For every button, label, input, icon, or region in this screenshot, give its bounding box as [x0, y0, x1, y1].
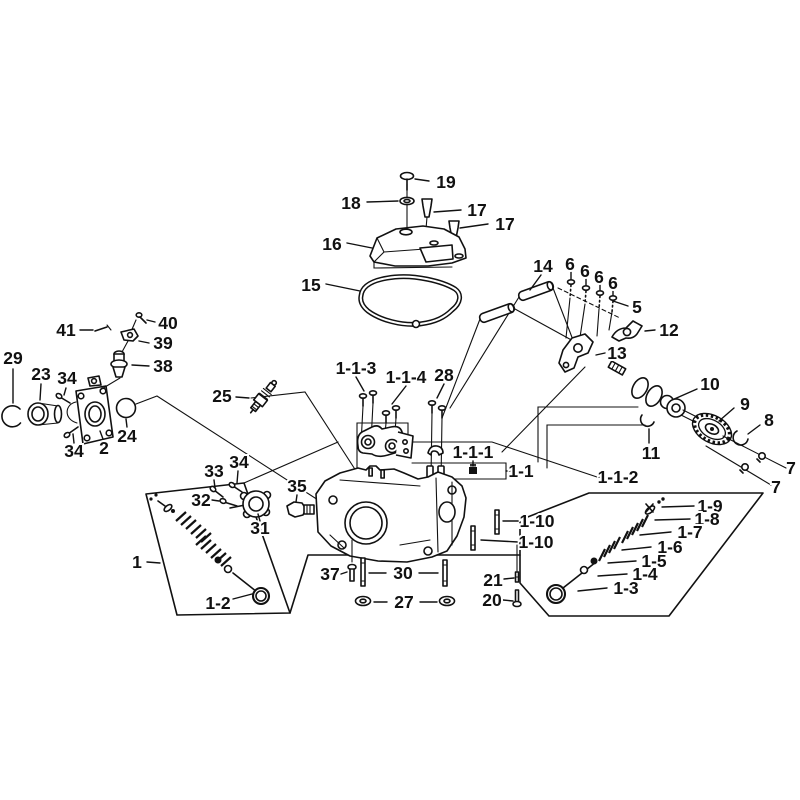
spring-seat-1-4-icon — [581, 567, 588, 574]
callout-14-rocker-shaft-pin: 14 — [533, 256, 553, 276]
washer-27a-icon — [356, 597, 371, 606]
callout-23-guide-sleeve: 23 — [31, 364, 51, 384]
spring-retainer-1-8-icon — [644, 504, 656, 515]
rocker-to-head-line — [502, 367, 585, 452]
rocker-pin-14b-icon — [479, 303, 516, 324]
guide-sleeve-23-icon — [28, 403, 62, 425]
callout-30-stud: 30 — [393, 563, 413, 583]
cam-bore-leader-inner — [547, 425, 645, 468]
leader-line-1 — [147, 562, 160, 563]
washer-18-icon — [400, 197, 414, 204]
callout-6-pivot-bolt: 6 — [594, 267, 604, 287]
callout-32-bolt: 32 — [191, 490, 211, 510]
clip-11-icon — [641, 415, 654, 426]
screw-34b-icon — [63, 427, 78, 439]
washer-27b-icon — [440, 597, 455, 606]
exhaust-valve-1-3-icon — [547, 562, 596, 603]
bolt-7a-icon — [723, 436, 786, 468]
callout-1-10-stud: 1-10 — [519, 511, 554, 531]
callout-20-bolt: 20 — [482, 590, 502, 610]
callout-1-1-4-bolt: 1-1-4 — [386, 367, 427, 387]
outer-spring-1-7-icon — [622, 515, 648, 543]
callout-21-pin: 21 — [483, 570, 503, 590]
rocker-arm-12-icon — [612, 321, 642, 341]
leader-line-28 — [437, 384, 444, 398]
leader-line-35 — [296, 495, 297, 502]
callout-41-bolt-clip: 41 — [56, 320, 76, 340]
callout-7-bolt: 7 — [786, 458, 796, 478]
cover-group — [361, 173, 466, 328]
callout-6-pivot-bolt: 6 — [608, 273, 618, 293]
valve-spring-inner-icon — [196, 536, 231, 566]
o-ring-24-icon — [117, 399, 136, 418]
callout-28-bolt: 28 — [434, 365, 454, 385]
spring-seat-icon — [215, 557, 222, 564]
leader-line-34 — [237, 471, 238, 483]
screw-34a-icon — [55, 392, 70, 403]
leader-line-1-1-3 — [356, 377, 364, 391]
stud-30b-icon — [443, 560, 447, 586]
callout-1-2-intake-valve: 1-2 — [205, 593, 231, 613]
callout-15-head-cover-gasket: 15 — [301, 275, 321, 295]
pin-21-icon — [516, 572, 519, 582]
spark-plug-25-icon — [246, 378, 279, 416]
callout-16-cylinder-head-cover: 16 — [322, 234, 342, 254]
callout-1-1-2-bracket-assembly: 1-1-2 — [598, 467, 639, 487]
callout-33-screw: 33 — [204, 461, 224, 481]
valve-keepers-1-9-icon — [646, 497, 665, 512]
callout-1-1-insulator-set: 1-1 — [508, 461, 534, 481]
head-center-group — [316, 391, 499, 562]
callout-40-screw: 40 — [158, 313, 178, 333]
cam-bore-leader-outer — [538, 407, 638, 462]
leader-line-8 — [748, 425, 760, 434]
leader-line-25 — [236, 397, 249, 398]
callout-34-screw: 34 — [229, 452, 249, 472]
intake-valve-1-2-icon — [233, 573, 269, 604]
callout-24-o-ring: 24 — [117, 426, 137, 446]
inner-spring-1-6-icon — [599, 537, 620, 561]
exploded-parts-diagram: 1918171716151466665121310987711414039382… — [0, 0, 800, 800]
callout-19-cover-screw: 19 — [436, 172, 456, 192]
cylinder-head-icon — [316, 466, 466, 562]
callout-29-snap-ring: 29 — [3, 348, 23, 368]
callout-31-flange: 31 — [250, 518, 270, 538]
leader-line-1-7 — [640, 532, 671, 535]
breather-valve-38-icon — [111, 351, 127, 377]
flange-31-icon — [230, 491, 271, 518]
clip-8-icon — [733, 431, 748, 445]
parts-diagram-page: 1918171716151466665121310987711414039382… — [0, 0, 800, 800]
bolt-32-icon — [219, 498, 237, 506]
callout-13-rocker-arm: 13 — [607, 343, 627, 363]
bolt-7b-icon — [706, 446, 771, 485]
cam-gear-9-icon — [687, 407, 737, 451]
callout-1-3-exhaust-valve: 1-3 — [613, 578, 639, 598]
valve-seal-1-5-icon — [591, 558, 598, 565]
callout-27-sealing-washer: 27 — [394, 592, 413, 612]
valve-cover-16-icon — [370, 226, 466, 268]
leader-line-18 — [367, 201, 398, 202]
rocker-arm-13-icon — [559, 334, 593, 372]
callout-7-bolt: 7 — [771, 477, 781, 497]
callout-39-bracket: 39 — [153, 333, 173, 353]
bolt-37-icon — [348, 565, 356, 582]
leader-line-23 — [40, 384, 41, 400]
leader-line-9 — [719, 408, 734, 421]
leader-line-21 — [504, 578, 514, 579]
screw-40-icon — [136, 313, 146, 323]
leader-line-17 — [434, 210, 461, 212]
gasket-15-icon — [361, 277, 460, 328]
leader-line-1-4 — [598, 574, 627, 576]
callout-35-thermostat-sensor: 35 — [287, 476, 307, 496]
bolt-clip-41-icon — [95, 325, 111, 331]
callout-5-rocker-pivot: 5 — [632, 297, 642, 317]
rocker-bracket-icon — [358, 426, 413, 458]
callout-38-breather-valve: 38 — [153, 356, 173, 376]
callout-1-1-3-bolt: 1-1-3 — [336, 358, 377, 378]
leader-line-37 — [341, 572, 347, 574]
leader-line-1-3 — [578, 588, 607, 591]
breather-chain-parts — [95, 313, 146, 390]
callout-1-valve-assembly: 1 — [132, 552, 142, 572]
leader-line-32 — [212, 500, 219, 501]
leader-line-15 — [326, 284, 360, 291]
thermostat-35-icon — [287, 502, 314, 517]
callout-1-10-stud: 1-10 — [518, 532, 553, 552]
leader-line-16 — [347, 243, 372, 248]
leader-line-20 — [503, 600, 513, 601]
leader-line-1-5 — [608, 561, 636, 563]
leader-line-1-9 — [662, 506, 694, 507]
leader-line-33 — [214, 480, 215, 488]
leader-line-19 — [415, 179, 429, 181]
bolt-20-icon — [513, 590, 521, 607]
leader-line-38 — [132, 365, 149, 366]
snap-ring-29-icon — [2, 406, 21, 427]
leader-line-1-6 — [622, 547, 651, 550]
cover-screw-19-icon — [401, 173, 414, 191]
callout-8-retaining-clip: 8 — [764, 410, 774, 430]
leader-line-17 — [460, 224, 488, 228]
leader-line-40 — [147, 320, 155, 322]
callout-6-pivot-bolt: 6 — [580, 261, 590, 281]
callout-2-intake-pipe: 2 — [99, 438, 109, 458]
leader-line-12 — [645, 330, 655, 331]
leader-line-1-1-4 — [392, 386, 406, 404]
leader-line-1-8 — [655, 519, 690, 520]
callout-6-pivot-bolt: 6 — [565, 254, 575, 274]
rocker-pin-14a-icon — [518, 281, 555, 302]
callout-17-breather-cap: 17 — [495, 214, 514, 234]
leader-line-13 — [596, 353, 605, 355]
callout-18-washer: 18 — [341, 193, 361, 213]
callout-17-breather-cap: 17 — [467, 200, 486, 220]
stud-30a-icon — [361, 558, 365, 586]
leader-line-39 — [139, 341, 149, 343]
studs-1-10-icons — [471, 510, 499, 550]
callout-25-spark-plug: 25 — [212, 386, 232, 406]
camshaft-10-icon — [608, 361, 701, 424]
callout-12-rocker-arm: 12 — [659, 320, 679, 340]
callout-37-bolt: 37 — [320, 564, 339, 584]
callout-34-screw: 34 — [64, 441, 84, 461]
insulator-hook-icon — [428, 446, 443, 455]
callout-9-cam-gear: 9 — [740, 394, 750, 414]
callout-1-1-1-nut: 1-1-1 — [453, 442, 494, 462]
leader-line-5 — [613, 301, 628, 306]
callout-34-screw: 34 — [57, 368, 77, 388]
leader-line-1-10 — [481, 540, 518, 542]
valve-seal-icon — [225, 566, 232, 573]
leader-line-34 — [64, 388, 66, 395]
callout-10-camshaft: 10 — [700, 374, 720, 394]
leader-line-10 — [672, 389, 697, 400]
bracket-39-icon — [121, 329, 138, 341]
leader-line-1-2 — [233, 594, 252, 599]
callout-11-clip: 11 — [642, 443, 661, 463]
screw-33-icon — [209, 485, 223, 497]
